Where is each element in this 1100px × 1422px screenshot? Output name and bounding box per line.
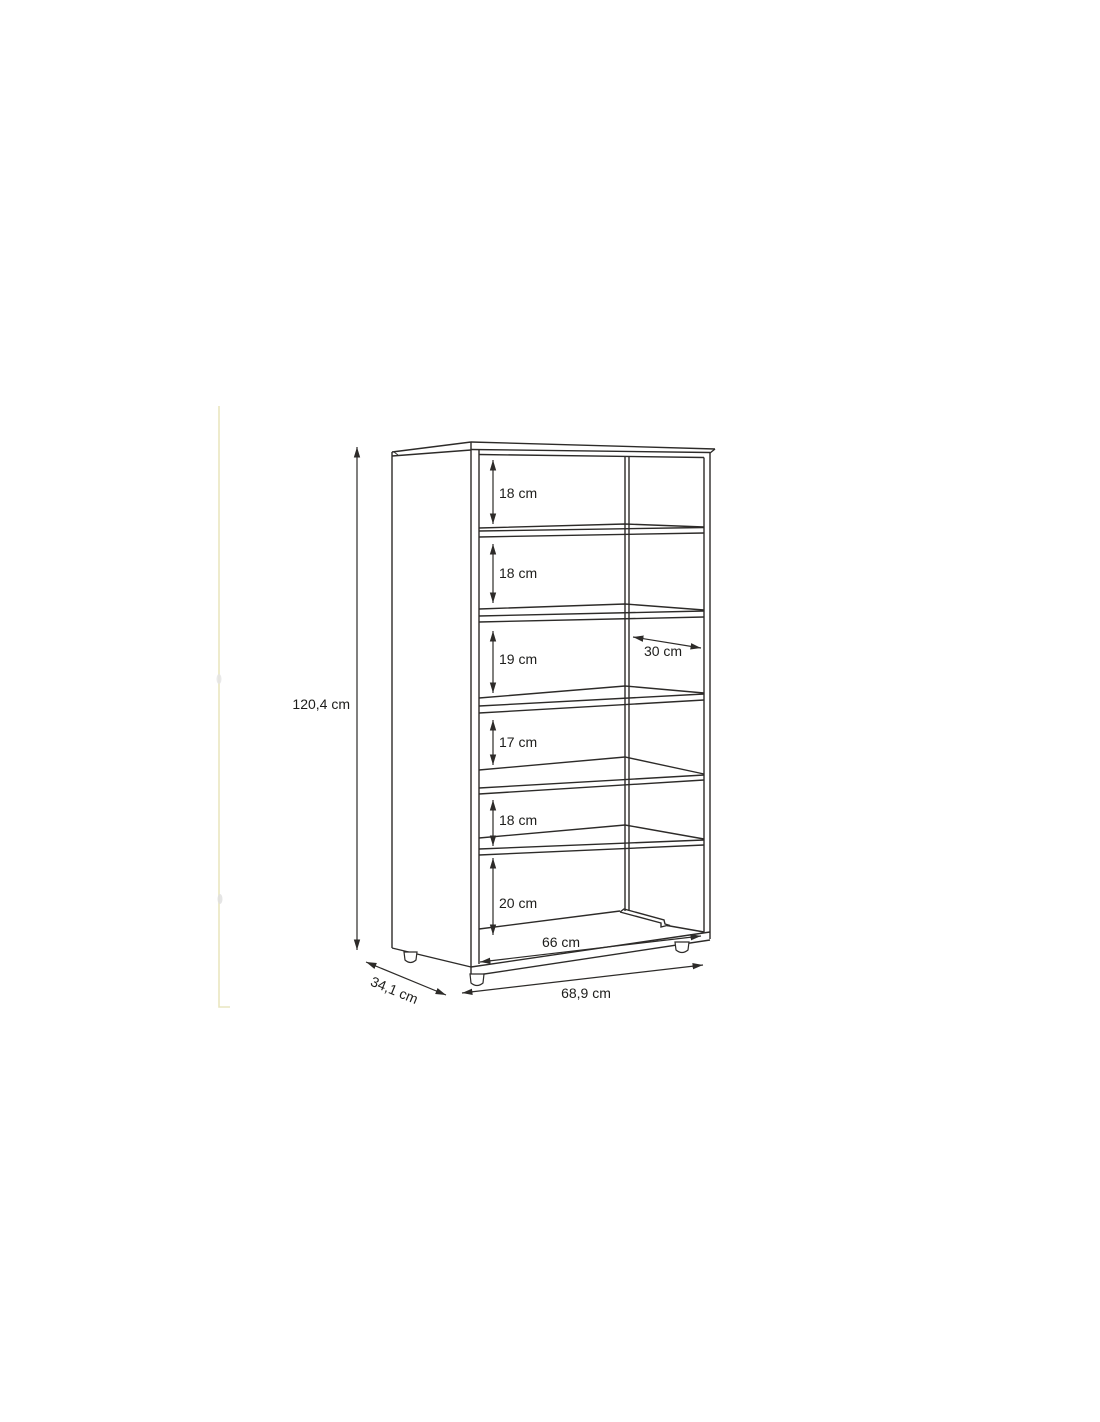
inner-width-label: 66 cm <box>542 934 580 950</box>
back-notch <box>620 909 670 927</box>
depth-label: 34,1 cm <box>368 973 420 1007</box>
height-label: 120,4 cm <box>292 696 350 712</box>
bottom-front-bottom <box>471 940 710 976</box>
compartment-6-label: 20 cm <box>499 895 537 911</box>
shelf-5 <box>479 825 704 855</box>
shelf-1 <box>479 524 704 537</box>
top-back-edge <box>471 442 715 449</box>
foot-back-left <box>404 952 417 963</box>
cabinet-outline <box>392 442 715 986</box>
floor-right-edge <box>667 926 704 933</box>
page-artifact-line <box>217 406 231 1007</box>
floor-back-edge <box>479 911 620 929</box>
top-front-edge <box>471 450 710 453</box>
ceiling-edge <box>479 455 704 458</box>
compartment-2-label: 18 cm <box>499 565 537 581</box>
compartment-1-label: 18 cm <box>499 485 537 501</box>
shelf-3 <box>479 686 704 713</box>
shelf-2 <box>479 604 704 622</box>
foot-front-left <box>470 974 484 986</box>
outer-width-label: 68,9 cm <box>561 985 611 1001</box>
furniture-dimension-diagram: 120,4 cm 18 cm 18 cm 19 cm 17 cm 18 cm 2… <box>0 0 1100 1422</box>
compartment-3-label: 19 cm <box>499 651 537 667</box>
compartment-5-label: 18 cm <box>499 812 537 828</box>
shelf-unit-technical-drawing: 120,4 cm 18 cm 18 cm 19 cm 17 cm 18 cm 2… <box>0 0 1100 1422</box>
side-panel-bottom-edge <box>392 948 471 967</box>
corner-tick <box>394 452 398 455</box>
shelf-depth-label: 30 cm <box>644 643 682 659</box>
compartment-4-label: 17 cm <box>499 734 537 750</box>
shelf-4 <box>479 757 704 794</box>
dimension-lines <box>357 447 703 995</box>
dimension-labels: 120,4 cm 18 cm 18 cm 19 cm 17 cm 18 cm 2… <box>292 485 682 1007</box>
foot-front-right <box>675 942 689 953</box>
